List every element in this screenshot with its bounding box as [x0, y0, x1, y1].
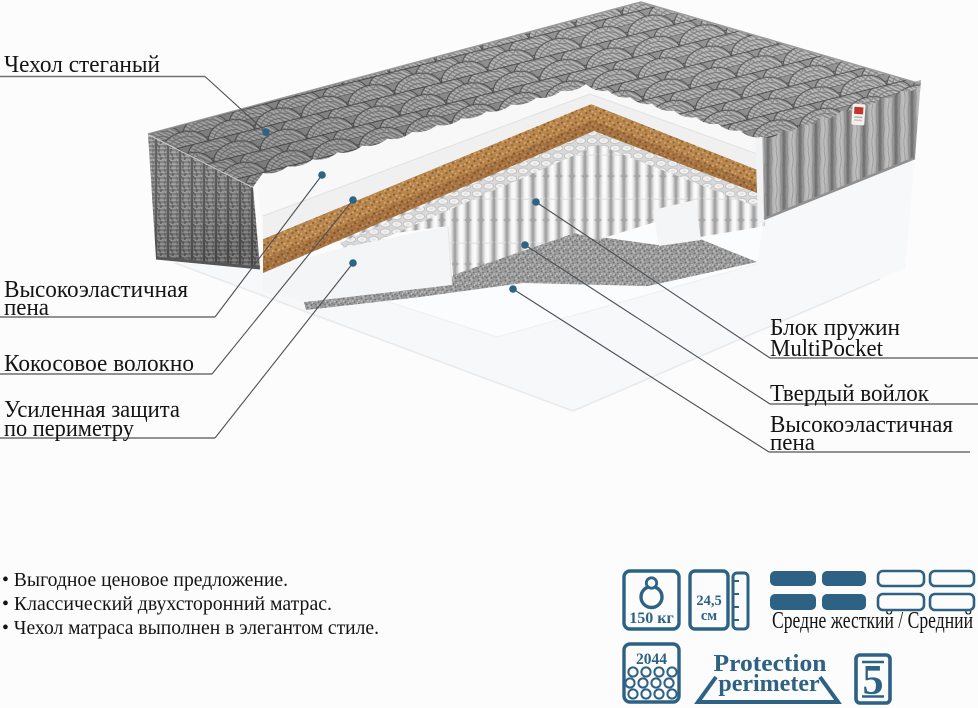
svg-text:MultiPocket: MultiPocket: [770, 336, 883, 362]
svg-text:пена: пена: [770, 430, 815, 456]
svg-text:Средне жесткий / Средний: Средне жесткий / Средний: [772, 608, 973, 634]
svg-text:• Выгодное ценовое предложение: • Выгодное ценовое предложение.: [2, 569, 288, 591]
svg-text:24,5: 24,5: [696, 593, 721, 609]
svg-text:5: 5: [863, 658, 884, 704]
svg-text:perimeter: perimeter: [718, 671, 820, 697]
svg-text:Кокосовое волокно: Кокосовое волокно: [4, 351, 194, 377]
svg-text:• Чехол матраса выполнен в эле: • Чехол матраса выполнен в элегантом сти…: [2, 617, 379, 639]
svg-text:Чехол стеганый: Чехол стеганый: [4, 52, 160, 78]
svg-text:150 кг: 150 кг: [629, 610, 673, 627]
svg-text:см: см: [701, 608, 717, 624]
svg-text:2044: 2044: [636, 651, 667, 668]
svg-text:по периметру: по периметру: [4, 416, 134, 442]
svg-text:пена: пена: [4, 295, 49, 321]
svg-text:Твердый войлок: Твердый войлок: [770, 381, 929, 407]
svg-text:• Классический двухсторонний м: • Классический двухсторонний матрас.: [2, 593, 332, 615]
